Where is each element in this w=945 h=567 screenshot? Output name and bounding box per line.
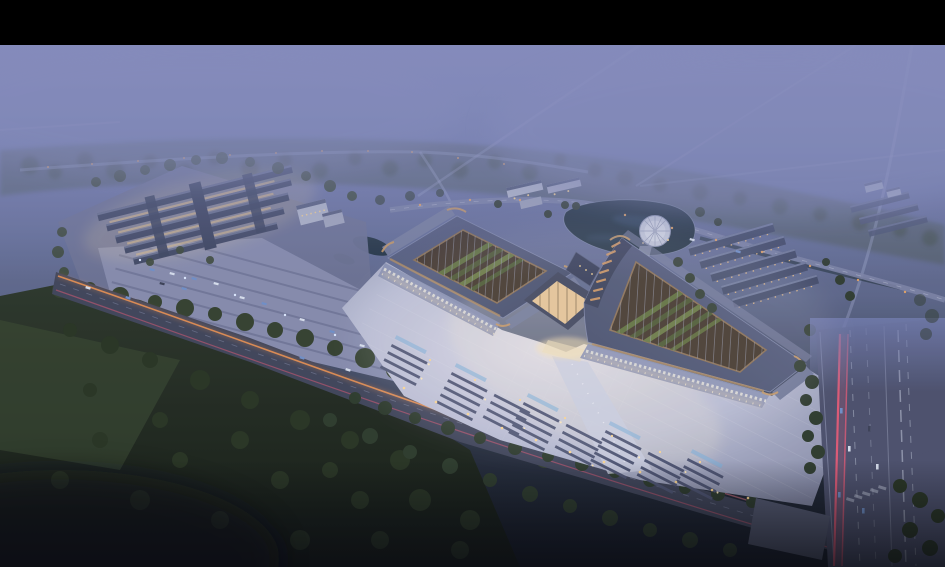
aerial-render-image	[0, 0, 945, 567]
letterbox-top-bar	[0, 0, 945, 45]
